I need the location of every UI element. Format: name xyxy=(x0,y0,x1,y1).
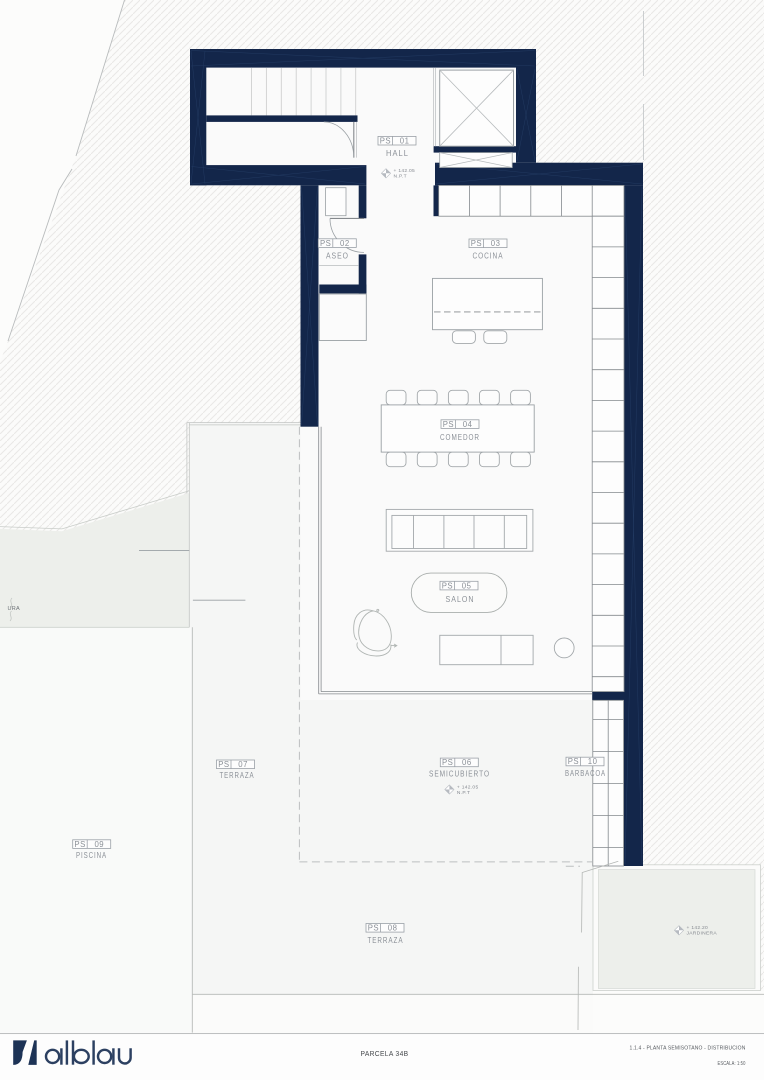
svg-text:PS: PS xyxy=(443,420,454,429)
svg-text:N.P.T: N.P.T xyxy=(394,174,407,180)
svg-text:1.1.4 - PLANTA SEMISOTANO - D: 1.1.4 - PLANTA SEMISOTANO - DISTRIBUCION xyxy=(630,1046,746,1052)
svg-text:08: 08 xyxy=(388,924,398,933)
svg-text:+ 142.05: + 142.05 xyxy=(457,784,479,790)
svg-text:06: 06 xyxy=(462,758,472,767)
svg-text:PS: PS xyxy=(380,136,391,145)
svg-text:PARCELA 34B: PARCELA 34B xyxy=(361,1049,409,1058)
svg-text:+ 142.05: + 142.05 xyxy=(394,168,416,174)
svg-text:05: 05 xyxy=(462,581,472,590)
svg-text:PS: PS xyxy=(568,757,579,766)
svg-text:HALL: HALL xyxy=(386,149,409,158)
svg-text:ESCALA: 1:50: ESCALA: 1:50 xyxy=(718,1061,746,1067)
svg-text:PS: PS xyxy=(74,840,85,849)
svg-text:JARDINERA: JARDINERA xyxy=(687,931,718,937)
svg-text:04: 04 xyxy=(463,420,473,429)
svg-text:N.P.T: N.P.T xyxy=(457,790,470,796)
svg-text:PS: PS xyxy=(218,760,229,769)
svg-text:COMEDOR: COMEDOR xyxy=(440,433,480,442)
svg-text:ASEO: ASEO xyxy=(326,252,349,261)
svg-text:URA: URA xyxy=(8,606,21,612)
svg-text:BARBACOA: BARBACOA xyxy=(565,769,606,778)
svg-text:03: 03 xyxy=(491,239,501,248)
svg-text:02: 02 xyxy=(340,239,350,248)
svg-text:PS: PS xyxy=(368,924,379,933)
svg-text:SEMICUBIERTO: SEMICUBIERTO xyxy=(429,770,490,779)
svg-text:TERRAZA: TERRAZA xyxy=(368,936,404,945)
svg-text:07: 07 xyxy=(238,760,248,769)
svg-text:PS: PS xyxy=(471,239,482,248)
svg-text:COCINA: COCINA xyxy=(473,251,504,260)
svg-text:10: 10 xyxy=(588,757,598,766)
svg-text:SALON: SALON xyxy=(446,595,475,604)
svg-text:PISCINA: PISCINA xyxy=(76,851,107,860)
svg-text:01: 01 xyxy=(400,136,410,145)
svg-text:PS: PS xyxy=(442,581,453,590)
svg-text:PS: PS xyxy=(442,758,453,767)
svg-text:09: 09 xyxy=(94,840,104,849)
svg-text:TERRAZA: TERRAZA xyxy=(220,771,255,780)
svg-text:+ 142.20: + 142.20 xyxy=(687,925,709,931)
svg-text:PS: PS xyxy=(320,239,331,248)
